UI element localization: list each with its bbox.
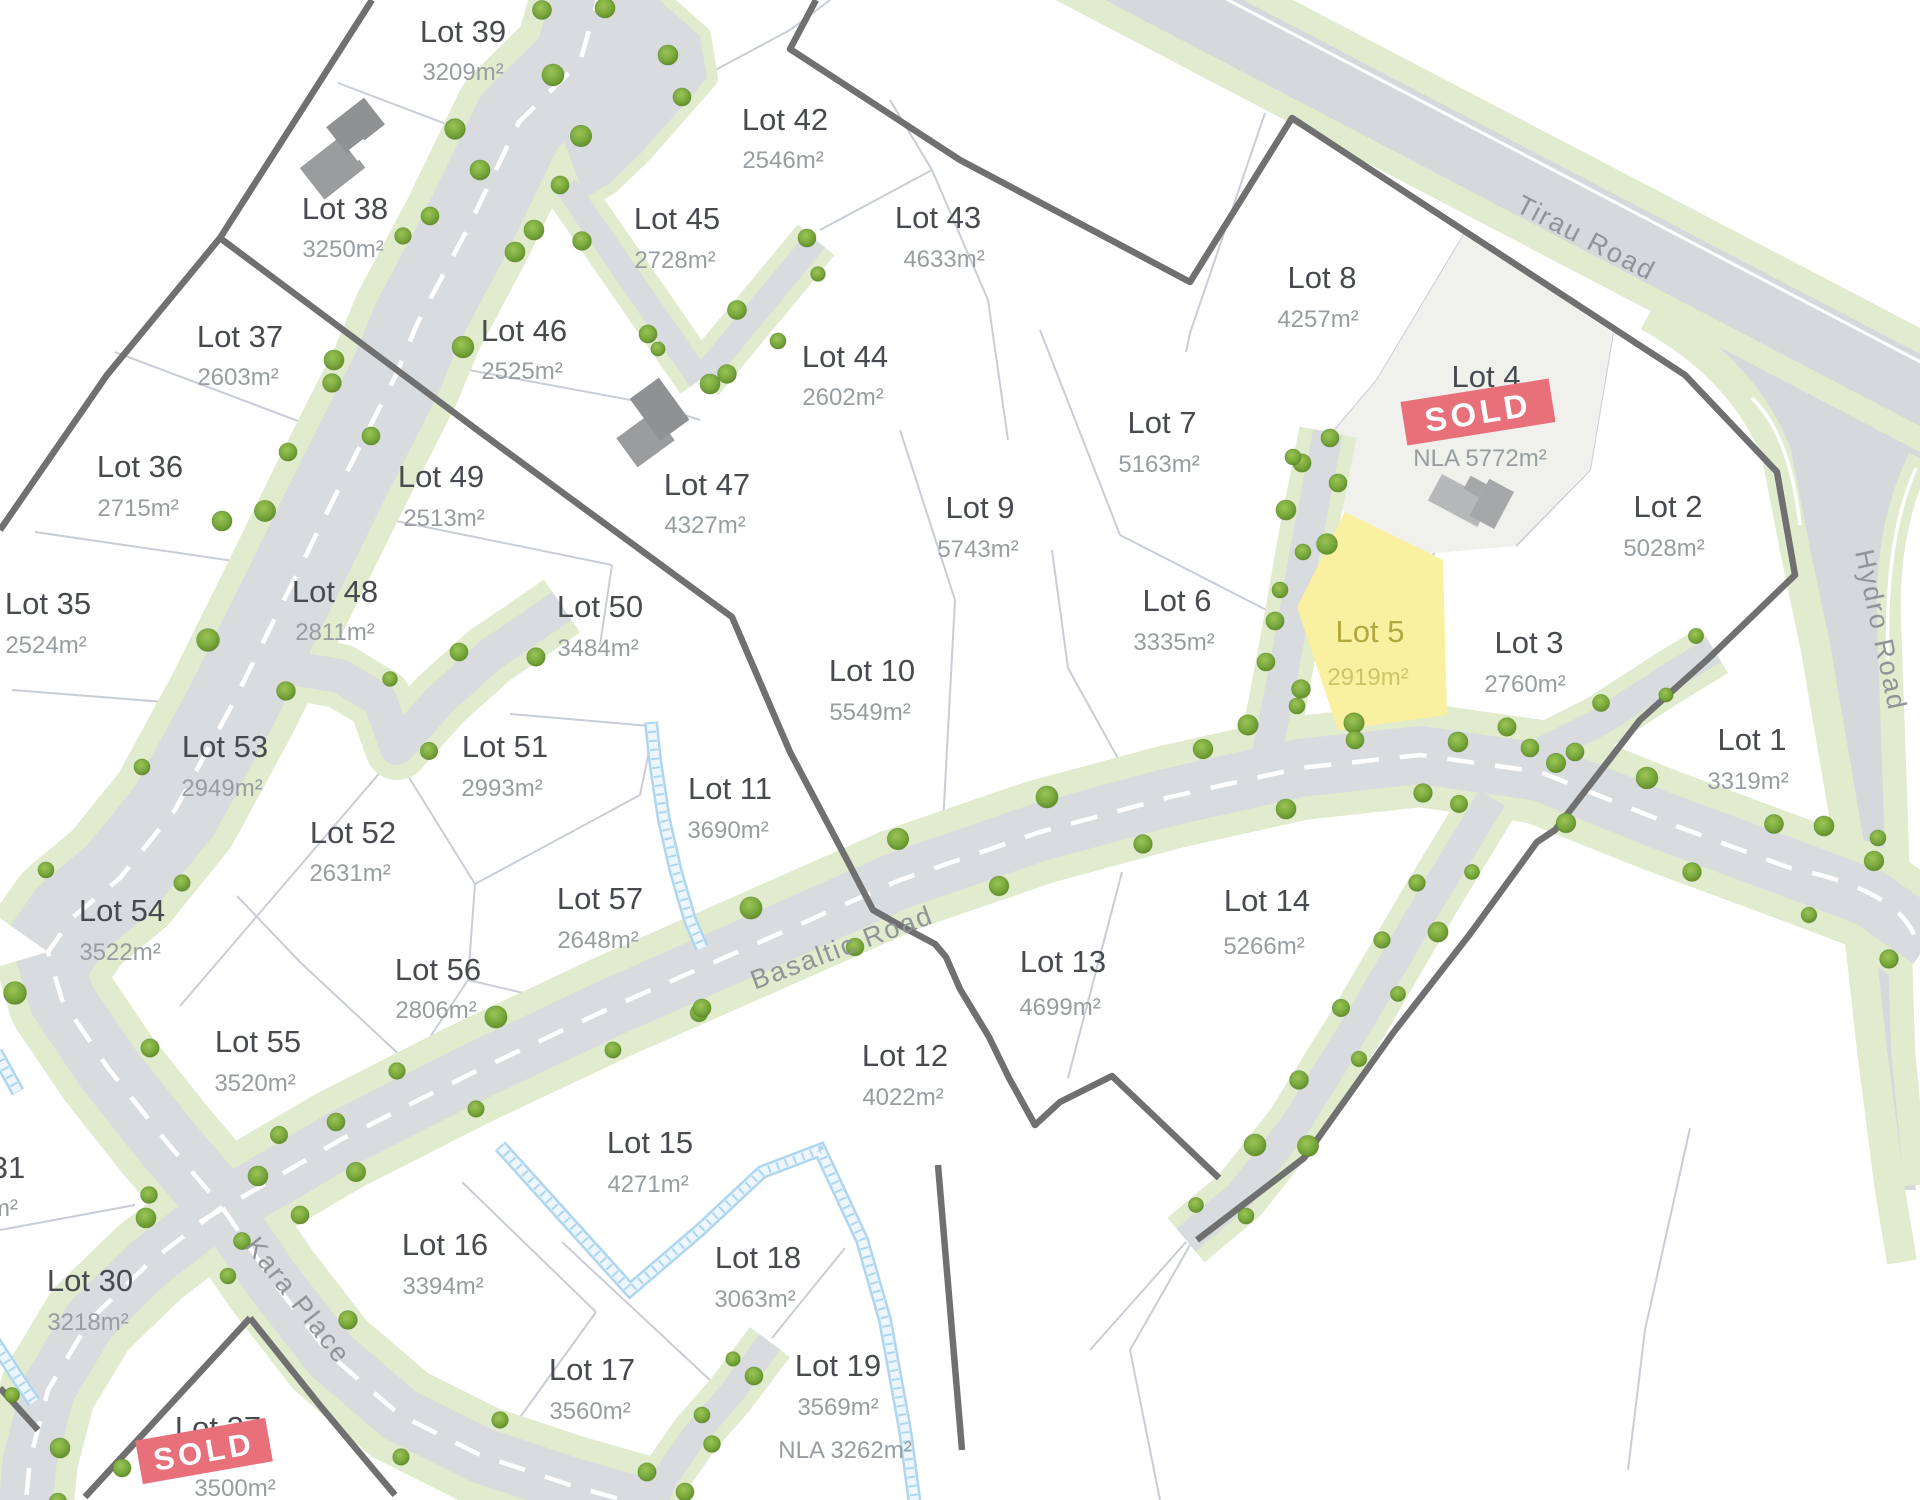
svg-text:3335m²: 3335m²	[1133, 629, 1214, 656]
svg-text:Lot 15: Lot 15	[607, 1125, 693, 1160]
svg-text:Lot 52: Lot 52	[310, 815, 396, 850]
svg-text:2524m²: 2524m²	[5, 632, 86, 659]
svg-text:3063m²: 3063m²	[714, 1286, 795, 1313]
svg-text:3218m²: 3218m²	[47, 1309, 128, 1336]
svg-text:2648m²: 2648m²	[557, 927, 638, 954]
svg-text:Lot 51: Lot 51	[462, 729, 548, 764]
svg-text:2949m²: 2949m²	[181, 775, 262, 802]
svg-text:2513m²: 2513m²	[403, 505, 484, 532]
svg-text:Lot 13: Lot 13	[1020, 944, 1106, 979]
svg-text:4257m²: 4257m²	[1277, 306, 1358, 333]
svg-text:2811m²: 2811m²	[295, 619, 375, 646]
svg-text:Lot 39: Lot 39	[420, 14, 506, 49]
svg-text:3394m²: 3394m²	[402, 1273, 483, 1300]
svg-text:Lot 8: Lot 8	[1288, 260, 1357, 295]
svg-text:Lot 12: Lot 12	[862, 1038, 948, 1073]
svg-text:Lot 6: Lot 6	[1143, 583, 1212, 618]
svg-text:Lot 10: Lot 10	[829, 653, 915, 688]
svg-text:Lot 50: Lot 50	[557, 589, 643, 624]
svg-text:NLA 3262m²: NLA 3262m²	[778, 1437, 911, 1464]
svg-text:5028m²: 5028m²	[1623, 535, 1704, 562]
svg-text:Lot 19: Lot 19	[795, 1348, 881, 1383]
svg-text:3500m²: 3500m²	[194, 1475, 275, 1500]
svg-text:3522m²: 3522m²	[79, 939, 160, 966]
svg-text:31: 31	[0, 1150, 25, 1185]
svg-text:2602m²: 2602m²	[802, 384, 883, 411]
svg-text:4633m²: 4633m²	[903, 246, 984, 273]
svg-text:NLA 5772m²: NLA 5772m²	[1413, 445, 1546, 472]
svg-text:3560m²: 3560m²	[549, 1398, 630, 1425]
svg-text:2603m²: 2603m²	[197, 364, 278, 391]
svg-text:Lot 3: Lot 3	[1495, 625, 1564, 660]
svg-text:Lot 45: Lot 45	[634, 201, 720, 236]
svg-text:2919m²: 2919m²	[1327, 664, 1408, 691]
svg-text:3484m²: 3484m²	[557, 635, 638, 662]
svg-text:Lot 47: Lot 47	[664, 467, 750, 502]
svg-text:Lot 17: Lot 17	[549, 1352, 635, 1387]
svg-text:4327m²: 4327m²	[664, 512, 745, 539]
svg-text:Lot 37: Lot 37	[197, 319, 283, 354]
svg-text:Lot 14: Lot 14	[1224, 883, 1310, 918]
svg-text:3250m²: 3250m²	[302, 236, 383, 263]
svg-text:Lot 30: Lot 30	[47, 1263, 133, 1298]
svg-text:5163m²: 5163m²	[1118, 451, 1199, 478]
svg-text:Lot 16: Lot 16	[402, 1227, 488, 1262]
svg-text:3569m²: 3569m²	[797, 1394, 878, 1421]
svg-text:Lot 42: Lot 42	[742, 102, 828, 137]
svg-text:2760m²: 2760m²	[1484, 671, 1565, 698]
svg-text:Lot 5: Lot 5	[1336, 614, 1405, 649]
svg-text:Lot 54: Lot 54	[79, 893, 165, 928]
svg-text:2631m²: 2631m²	[309, 860, 390, 887]
svg-text:4022m²: 4022m²	[862, 1084, 943, 1111]
svg-text:Lot 55: Lot 55	[215, 1024, 301, 1059]
svg-text:Lot 38: Lot 38	[302, 191, 388, 226]
svg-text:4271m²: 4271m²	[607, 1171, 688, 1198]
svg-text:Lot 35: Lot 35	[5, 586, 91, 621]
svg-text:Lot 53: Lot 53	[182, 729, 268, 764]
svg-text:4699m²: 4699m²	[1019, 994, 1100, 1021]
svg-text:Lot 56: Lot 56	[395, 952, 481, 987]
svg-text:5549m²: 5549m²	[829, 699, 910, 726]
svg-text:Lot 1: Lot 1	[1718, 722, 1787, 757]
svg-text:Lot 2: Lot 2	[1634, 489, 1703, 524]
svg-text:Lot 44: Lot 44	[802, 339, 888, 374]
svg-text:2715m²: 2715m²	[97, 495, 178, 522]
svg-text:Lot 49: Lot 49	[398, 459, 484, 494]
svg-text:2993m²: 2993m²	[461, 775, 542, 802]
svg-text:Lot 57: Lot 57	[557, 881, 643, 916]
svg-text:Lot 18: Lot 18	[715, 1240, 801, 1275]
svg-text:Lot 7: Lot 7	[1128, 405, 1197, 440]
svg-text:Lot 11: Lot 11	[688, 771, 772, 806]
svg-text:3690m²: 3690m²	[687, 817, 768, 844]
svg-text:5743m²: 5743m²	[937, 536, 1018, 563]
svg-text:5266m²: 5266m²	[1223, 933, 1304, 960]
svg-text:m²: m²	[0, 1195, 18, 1222]
svg-text:2546m²: 2546m²	[742, 147, 823, 174]
svg-text:2728m²: 2728m²	[634, 247, 715, 274]
svg-text:Lot 43: Lot 43	[895, 200, 981, 235]
svg-text:Lot 46: Lot 46	[481, 313, 567, 348]
svg-text:3319m²: 3319m²	[1707, 768, 1788, 795]
svg-text:2525m²: 2525m²	[481, 358, 562, 385]
svg-text:Lot 9: Lot 9	[946, 490, 1015, 525]
svg-text:Lot 36: Lot 36	[97, 449, 183, 484]
svg-text:3520m²: 3520m²	[214, 1070, 295, 1097]
svg-text:Lot 48: Lot 48	[292, 574, 378, 609]
svg-text:2806m²: 2806m²	[395, 997, 476, 1024]
svg-text:3209m²: 3209m²	[422, 59, 503, 86]
